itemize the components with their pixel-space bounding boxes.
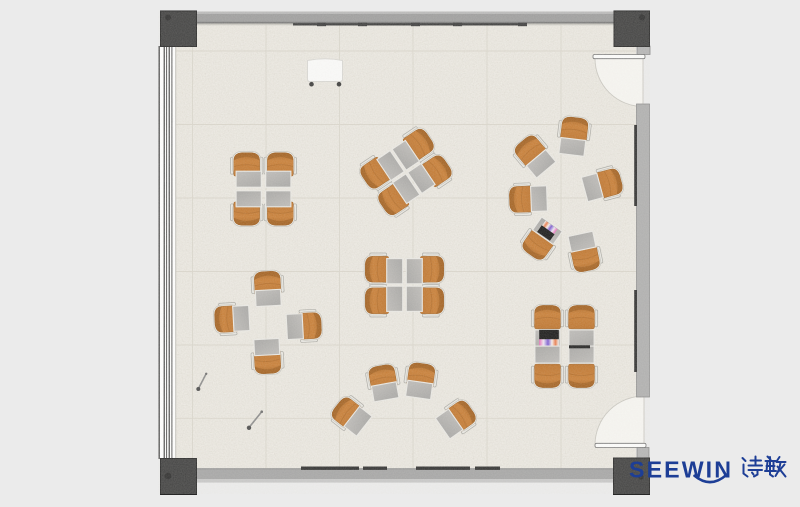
svg-text:SEEWIN: SEEWIN (629, 456, 733, 482)
